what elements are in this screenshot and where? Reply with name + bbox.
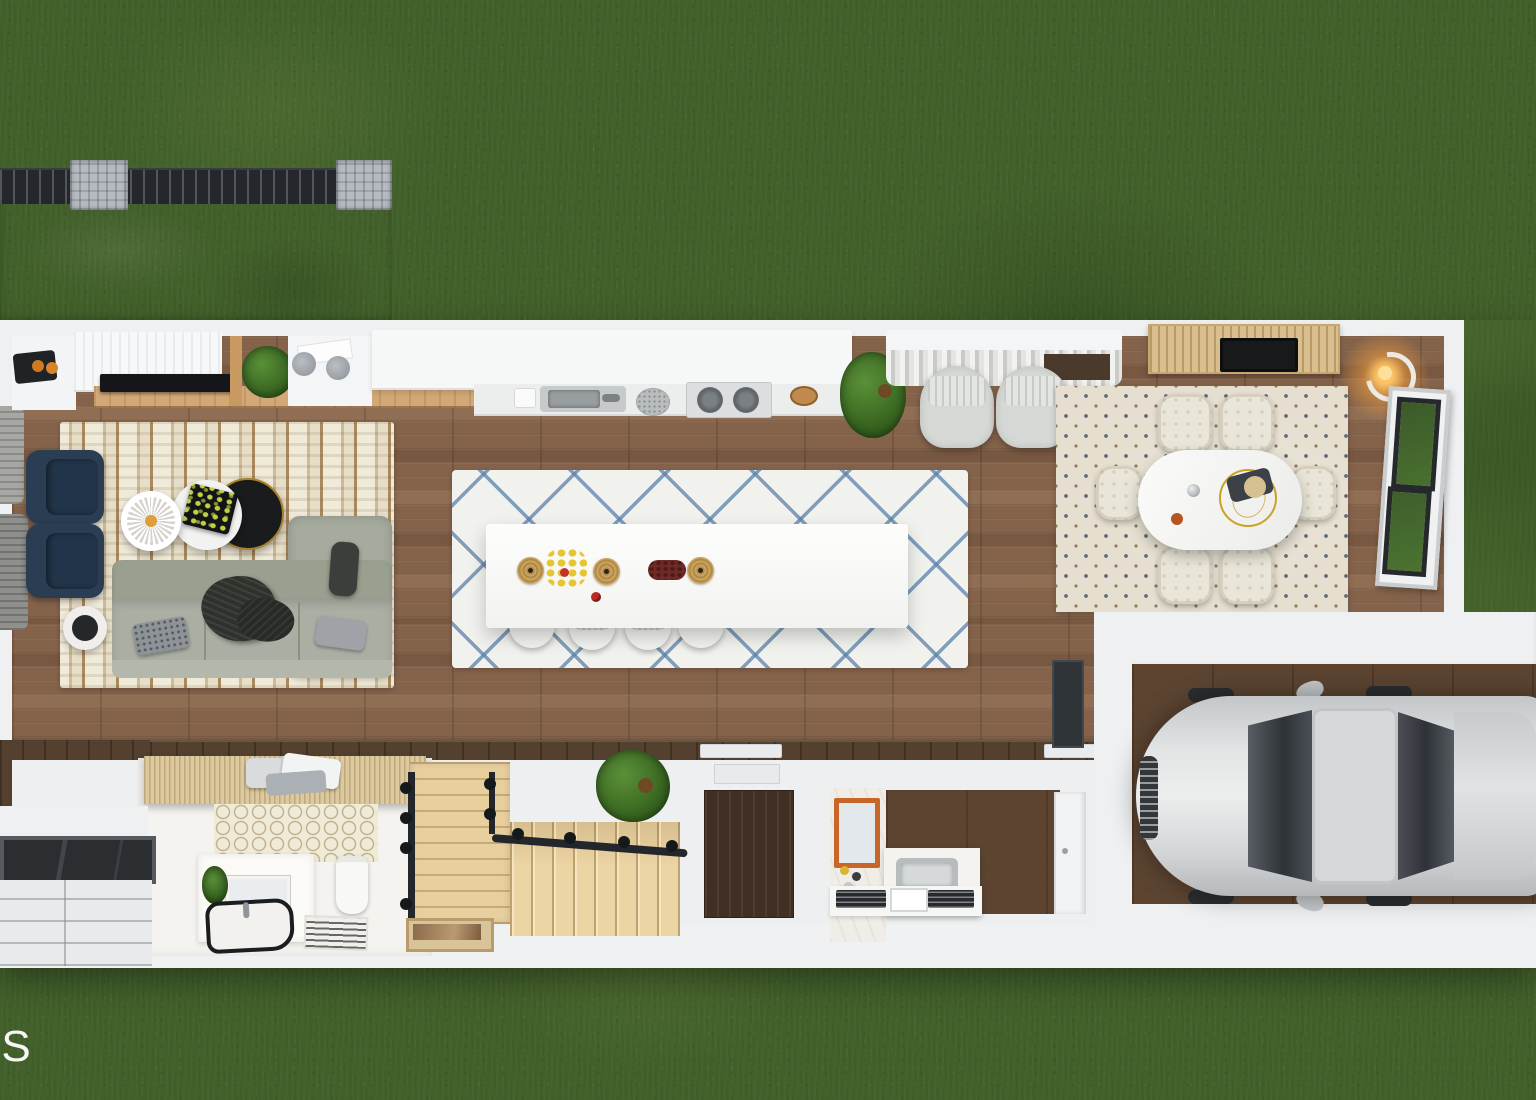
spoke-coffee-table — [121, 491, 181, 551]
navy-armchair — [26, 450, 104, 524]
stair-plant — [596, 750, 670, 822]
orange-fruit — [46, 362, 58, 374]
closet-door — [1054, 792, 1086, 914]
dining-chair — [1220, 394, 1274, 452]
tv — [100, 374, 234, 392]
table-silver-ball — [1187, 484, 1200, 497]
bath-mat — [303, 915, 368, 951]
chaise-pillow — [328, 541, 360, 597]
vent-grille — [928, 890, 974, 908]
rail-finial — [400, 898, 412, 910]
desk-round-item — [292, 352, 316, 376]
wood-bowl — [790, 386, 818, 406]
table-center-dot — [145, 515, 157, 527]
desk-round-item — [326, 356, 350, 380]
car-windshield — [1248, 710, 1312, 882]
table-bread — [1244, 476, 1266, 498]
colander — [636, 388, 670, 416]
dining-chair — [1220, 546, 1274, 604]
rail-finial — [564, 832, 576, 844]
placemat — [517, 557, 544, 584]
rail-finial — [484, 808, 496, 820]
car-trunk — [1454, 712, 1536, 880]
gray-pouf — [0, 406, 24, 504]
round-side-table — [63, 606, 107, 650]
decor-item — [840, 866, 849, 875]
chair-cushion — [1004, 376, 1062, 406]
lamp-bulb — [1378, 366, 1392, 380]
pinecone — [878, 384, 892, 398]
potted-plant — [242, 346, 294, 398]
basin-faucet — [243, 902, 250, 918]
pinecone — [638, 778, 653, 793]
rail-finial — [666, 840, 678, 852]
bathroom-plant — [202, 866, 228, 904]
skylight — [1220, 338, 1298, 372]
rail-finial — [400, 782, 412, 794]
sofa-front-edge — [112, 660, 392, 678]
burner — [697, 387, 723, 413]
wood-divider — [230, 336, 242, 406]
armchair-seat — [46, 459, 98, 515]
entry-door-sill — [714, 764, 780, 784]
rail-finial — [512, 828, 524, 840]
garage-bottom-wall — [1094, 904, 1536, 968]
car-rear-glass — [1398, 712, 1454, 880]
gray-pouf — [0, 514, 28, 630]
red-fruit — [560, 568, 569, 577]
door-pane-lower — [1382, 486, 1432, 577]
deck-concrete-slab — [0, 200, 392, 324]
porch-glass-canopy — [0, 836, 156, 884]
berry — [591, 592, 601, 602]
car-grille — [1140, 756, 1158, 840]
garage-top-wall — [1094, 612, 1536, 668]
side-yard-grass — [1464, 320, 1536, 616]
deck-railing — [0, 168, 392, 204]
placemat — [593, 558, 620, 585]
sink-faucet — [602, 394, 620, 402]
dining-chair — [1096, 466, 1142, 520]
sink-basin — [548, 390, 600, 408]
sink-inner — [901, 863, 953, 887]
side-table-bowl — [72, 615, 98, 641]
vent-grille — [836, 890, 886, 908]
doormat-print — [413, 924, 481, 940]
rail-finial — [484, 778, 496, 790]
burner — [733, 387, 759, 413]
placemat — [687, 557, 714, 584]
dining-chair — [1158, 546, 1212, 604]
navy-armchair — [26, 524, 104, 598]
doormat — [406, 918, 494, 952]
orange-fruit — [32, 360, 44, 372]
porch-upper-trim — [0, 806, 148, 836]
armchair-seat — [46, 533, 98, 589]
hall-door-sill — [700, 744, 782, 758]
kitchen-upper-cabinets — [372, 330, 852, 390]
dish-stack — [514, 388, 536, 408]
nook-chair — [920, 366, 994, 448]
paver-walkway — [0, 880, 152, 966]
door-pane-upper — [1391, 397, 1441, 492]
car-roof — [1312, 708, 1398, 884]
table-fruit — [1171, 513, 1183, 525]
decor-item — [852, 872, 861, 881]
dark-wall-panel — [1052, 660, 1084, 748]
kitchen-sink — [540, 386, 626, 412]
red-dish — [648, 560, 686, 580]
rail-finial — [618, 836, 630, 848]
floor-plan-render: AS — [0, 0, 1536, 1100]
door-handle — [1062, 848, 1068, 854]
cooktop — [686, 382, 772, 418]
dining-chair — [1158, 394, 1212, 452]
toilet — [336, 856, 368, 914]
towel — [265, 770, 326, 796]
rail-finial — [400, 842, 412, 854]
black-rim-basin — [205, 898, 296, 955]
orange-frame-mirror — [834, 798, 880, 868]
chair-cushion — [928, 376, 986, 406]
watermark: AS — [0, 1022, 33, 1072]
mini-sink — [890, 888, 928, 912]
entry-dark-floor — [704, 790, 794, 918]
rail-finial — [400, 812, 412, 824]
